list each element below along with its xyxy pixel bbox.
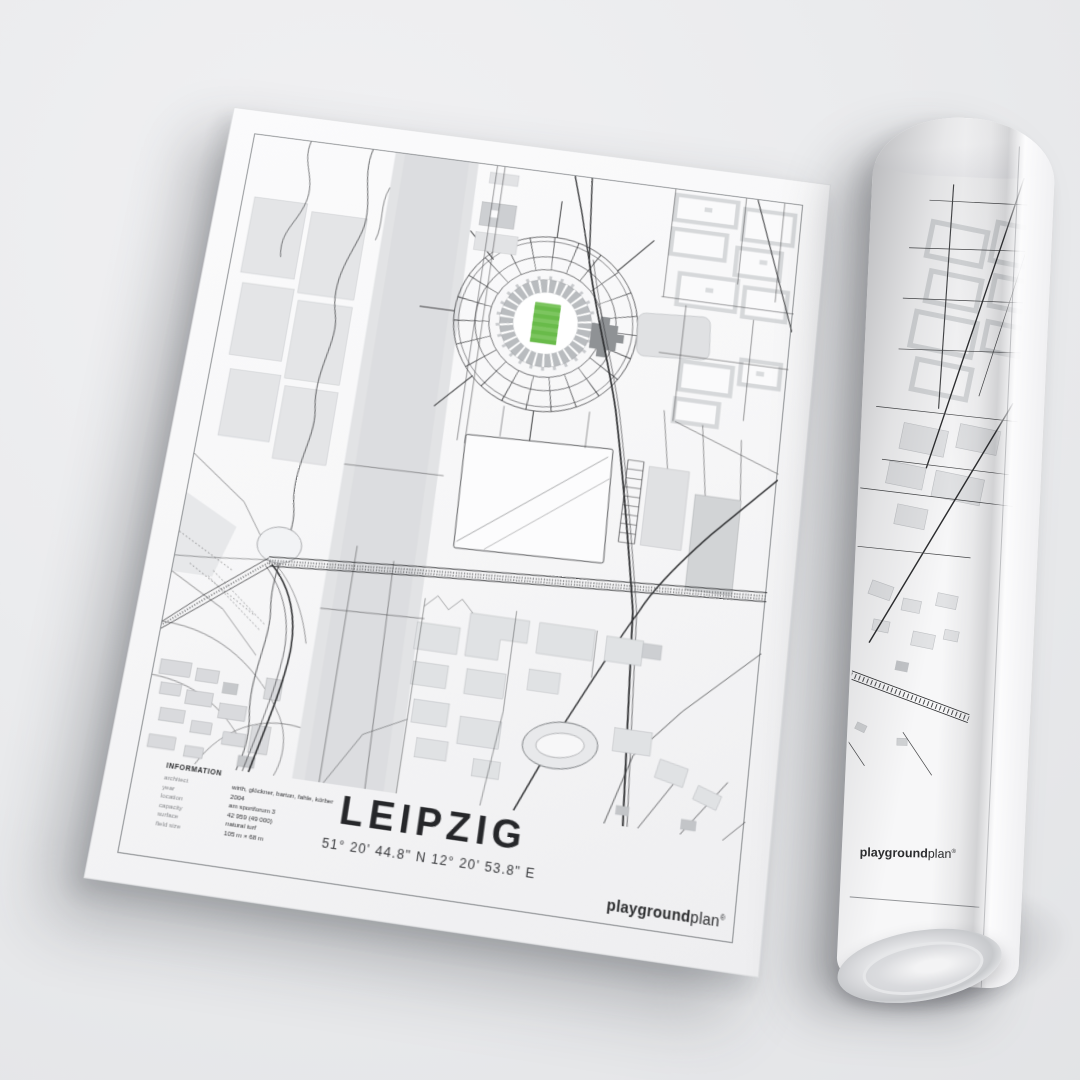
band-top-buildings — [473, 171, 526, 255]
poster-paper: INFORMATION architect wirth, glöckner, b… — [83, 107, 830, 978]
flat-poster: INFORMATION architect wirth, glöckner, b… — [83, 107, 830, 978]
rolled-poster: playgroundplan® — [836, 114, 1057, 989]
brand-light: plan — [690, 908, 721, 930]
poster-frame: INFORMATION architect wirth, glöckner, b… — [117, 133, 803, 943]
roll-body: playgroundplan® — [836, 114, 1057, 989]
festwiese — [449, 396, 621, 569]
roll-paper-wrap-edge — [836, 114, 1057, 989]
registered-mark: ® — [720, 915, 726, 924]
scene: INFORMATION architect wirth, glöckner, b… — [0, 0, 1080, 1080]
athletics-track — [522, 722, 598, 769]
mid-right-blocks — [636, 467, 743, 596]
arena-hall — [636, 313, 710, 361]
small-buildings-left — [144, 659, 284, 771]
stadium-street-map — [137, 134, 804, 843]
